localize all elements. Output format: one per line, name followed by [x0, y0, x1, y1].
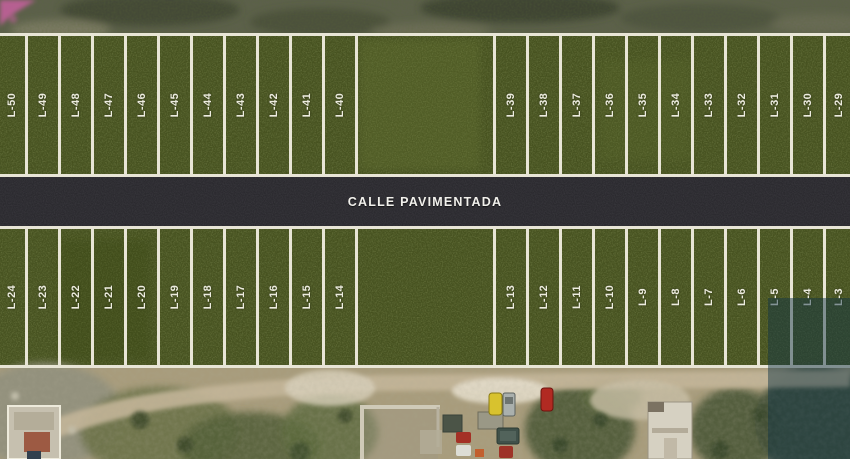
lot-label: L-21 [103, 285, 115, 310]
lot-l-22: L-22 [61, 229, 94, 365]
lot-l-13: L-13 [496, 229, 529, 365]
lot-label: L-29 [833, 93, 845, 118]
lot-l-21: L-21 [94, 229, 127, 365]
lot-l-8: L-8 [661, 229, 694, 365]
lot-l-20: L-20 [127, 229, 160, 365]
paved-street: CALLE PAVIMENTADA [0, 177, 850, 226]
lot-l-6: L-6 [727, 229, 760, 365]
lot-l-37: L-37 [562, 36, 595, 174]
lot-row-top: L-50L-49L-48L-47L-46L-45L-44L-43L-42L-41… [0, 33, 850, 177]
lot-l-39: L-39 [496, 36, 529, 174]
lot-l-7: L-7 [694, 229, 727, 365]
lot-label: L-47 [103, 93, 115, 118]
lot-l-10: L-10 [595, 229, 628, 365]
lot-label: L-15 [301, 285, 313, 310]
truck-gray [503, 393, 515, 416]
lot-label: L-49 [37, 93, 49, 118]
lot-l-17: L-17 [226, 229, 259, 365]
lot-l-24: L-24 [0, 229, 28, 365]
red-roof [24, 432, 50, 452]
lot-label: L-42 [268, 93, 280, 118]
lot-wide-bottom [358, 229, 496, 365]
object-orange [475, 449, 484, 457]
lot-l-50: L-50 [0, 36, 28, 174]
lot-l-49: L-49 [28, 36, 61, 174]
highlight-overlay [768, 298, 850, 459]
lot-l-30: L-30 [793, 36, 826, 174]
lot-l-9: L-9 [628, 229, 661, 365]
lot-label: L-37 [571, 93, 583, 118]
lot-label: L-46 [136, 93, 148, 118]
lot-label: L-38 [538, 93, 550, 118]
lot-label: L-35 [637, 93, 649, 118]
lot-label: L-24 [6, 285, 18, 310]
lot-l-35: L-35 [628, 36, 661, 174]
lot-label: L-50 [6, 93, 18, 118]
lot-l-48: L-48 [61, 36, 94, 174]
lot-l-44: L-44 [193, 36, 226, 174]
lot-label: L-41 [301, 93, 313, 118]
lot-label: L-12 [538, 285, 550, 310]
lot-l-47: L-47 [94, 36, 127, 174]
lot-label: L-31 [769, 93, 781, 118]
building-left [8, 406, 60, 459]
lot-label: L-40 [334, 93, 346, 118]
car-red-2 [456, 432, 471, 443]
lot-l-15: L-15 [292, 229, 325, 365]
lot-label: L-39 [505, 93, 517, 118]
car-white [456, 445, 471, 456]
lot-label: L-9 [637, 288, 649, 306]
lot-l-45: L-45 [160, 36, 193, 174]
lot-l-40: L-40 [325, 36, 358, 174]
lot-label: L-19 [169, 285, 181, 310]
lot-l-33: L-33 [694, 36, 727, 174]
lot-l-46: L-46 [127, 36, 160, 174]
lot-label: L-22 [70, 285, 82, 310]
lot-label: L-23 [37, 285, 49, 310]
lot-label: L-18 [202, 285, 214, 310]
lot-label: L-13 [505, 285, 517, 310]
building-right [648, 402, 692, 459]
lot-label: L-36 [604, 93, 616, 118]
lot-label: L-8 [670, 288, 682, 306]
lot-label: L-14 [334, 285, 346, 310]
car-yellow [489, 393, 502, 415]
lot-l-36: L-36 [595, 36, 628, 174]
road-label: CALLE PAVIMENTADA [348, 195, 502, 209]
lot-l-43: L-43 [226, 36, 259, 174]
lot-l-11: L-11 [562, 229, 595, 365]
car-red [541, 388, 553, 411]
lot-label: L-11 [571, 285, 583, 309]
lot-l-31: L-31 [760, 36, 793, 174]
lot-label: L-44 [202, 93, 214, 118]
lot-l-34: L-34 [661, 36, 694, 174]
lot-l-41: L-41 [292, 36, 325, 174]
lot-label: L-16 [268, 285, 280, 310]
lot-label: L-33 [703, 93, 715, 118]
dark-shed [443, 415, 462, 432]
lot-l-19: L-19 [160, 229, 193, 365]
lot-label: L-17 [235, 285, 247, 310]
lot-label: L-45 [169, 93, 181, 118]
lot-l-18: L-18 [193, 229, 226, 365]
lot-l-12: L-12 [529, 229, 562, 365]
lot-label: L-10 [604, 285, 616, 310]
lot-l-32: L-32 [727, 36, 760, 174]
lot-l-38: L-38 [529, 36, 562, 174]
lot-l-29: L-29 [826, 36, 850, 174]
aerial-strip-bottom [0, 363, 850, 459]
lot-label: L-48 [70, 93, 82, 118]
lot-label: L-7 [703, 288, 715, 306]
lot-l-23: L-23 [28, 229, 61, 365]
lot-label: L-30 [802, 93, 814, 118]
lot-label: L-43 [235, 93, 247, 118]
lot-l-14: L-14 [325, 229, 358, 365]
lot-map: L-50L-49L-48L-47L-46L-45L-44L-43L-42L-41… [0, 0, 850, 459]
lot-l-42: L-42 [259, 36, 292, 174]
lot-label: L-6 [736, 288, 748, 306]
lot-row-bottom: L-24L-23L-22L-21L-20L-19L-18L-17L-16L-15… [0, 226, 850, 368]
lot-l-16: L-16 [259, 229, 292, 365]
truck-red [499, 446, 513, 458]
lot-wide-top [358, 36, 496, 174]
lot-label: L-20 [136, 285, 148, 310]
lot-label: L-32 [736, 93, 748, 118]
lot-label: L-34 [670, 93, 682, 118]
